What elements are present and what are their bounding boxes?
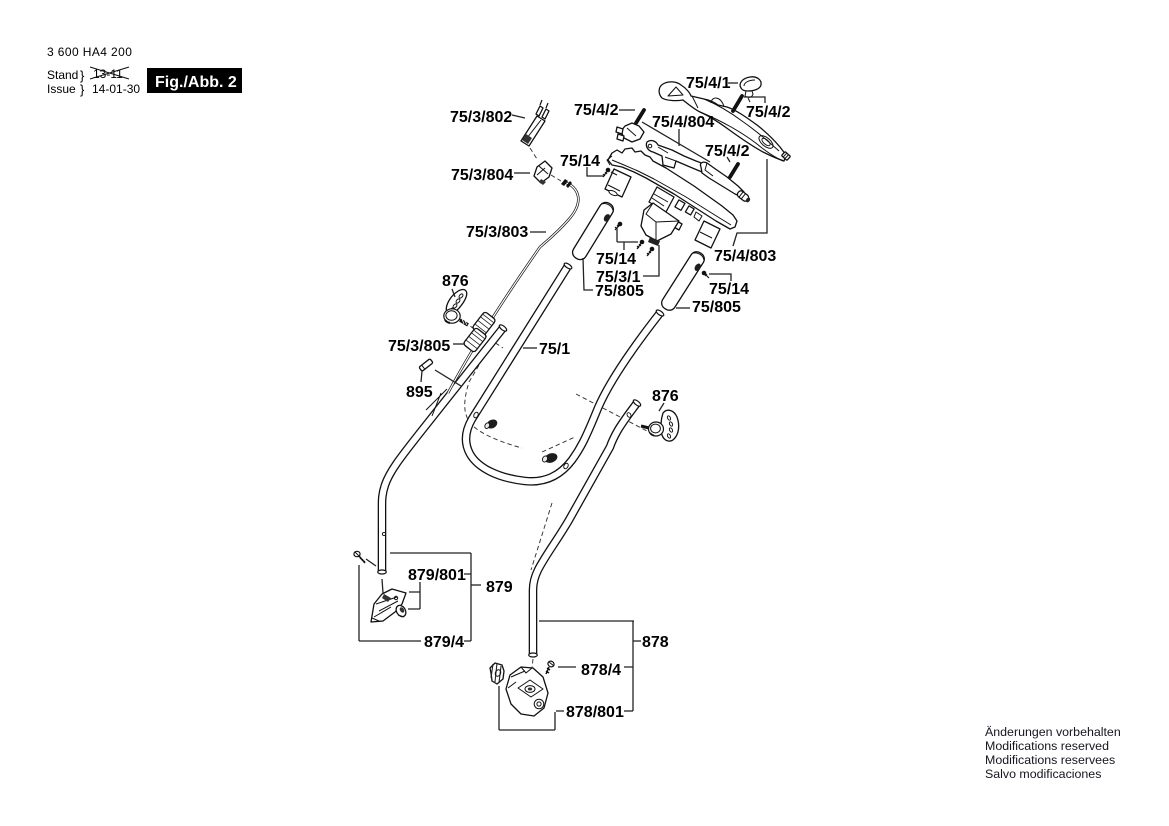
svg-text:75/4/2: 75/4/2 (705, 143, 750, 160)
svg-text:}: } (80, 68, 85, 83)
svg-text:14-01-30: 14-01-30 (92, 82, 140, 96)
svg-text:Fig./Abb. 2: Fig./Abb. 2 (155, 74, 237, 91)
svg-text:75/14: 75/14 (596, 251, 636, 268)
svg-text:75/14: 75/14 (560, 153, 600, 170)
svg-text:Issue: Issue (47, 82, 76, 96)
svg-text:Stand: Stand (47, 68, 78, 82)
svg-text:878/801: 878/801 (566, 704, 624, 721)
svg-text:75/4/804: 75/4/804 (652, 114, 714, 131)
svg-text:895: 895 (406, 384, 433, 401)
svg-text:878: 878 (642, 634, 669, 651)
svg-text:Modifications reserved: Modifications reserved (985, 739, 1109, 753)
svg-text:75/3/804: 75/3/804 (451, 167, 513, 184)
svg-text:75/4/803: 75/4/803 (714, 248, 776, 265)
svg-text:75/1: 75/1 (539, 341, 570, 358)
svg-text:Änderungen vorbehalten: Änderungen vorbehalten (985, 725, 1121, 739)
svg-text:75/805: 75/805 (692, 299, 741, 316)
svg-text:Modifications reservees: Modifications reservees (985, 753, 1115, 767)
svg-text:75/805: 75/805 (595, 283, 644, 300)
svg-text:876: 876 (442, 273, 469, 290)
svg-text:879: 879 (486, 579, 513, 596)
svg-text:75/4/1: 75/4/1 (686, 75, 731, 92)
svg-text:876: 876 (652, 388, 679, 405)
svg-text:75/14: 75/14 (709, 281, 749, 298)
svg-text:}: } (80, 82, 85, 97)
svg-text:75/3/802: 75/3/802 (450, 109, 512, 126)
svg-text:878/4: 878/4 (581, 662, 621, 679)
svg-text:75/4/2: 75/4/2 (574, 102, 619, 119)
svg-text:75/3/803: 75/3/803 (466, 224, 528, 241)
svg-text:75/3/805: 75/3/805 (388, 338, 450, 355)
svg-text:879/4: 879/4 (424, 634, 464, 651)
svg-text:Salvo modificaciones: Salvo modificaciones (985, 767, 1101, 781)
svg-text:3 600 HA4 200: 3 600 HA4 200 (47, 45, 132, 59)
svg-text:75/4/2: 75/4/2 (746, 104, 791, 121)
svg-text:879/801: 879/801 (408, 567, 466, 584)
